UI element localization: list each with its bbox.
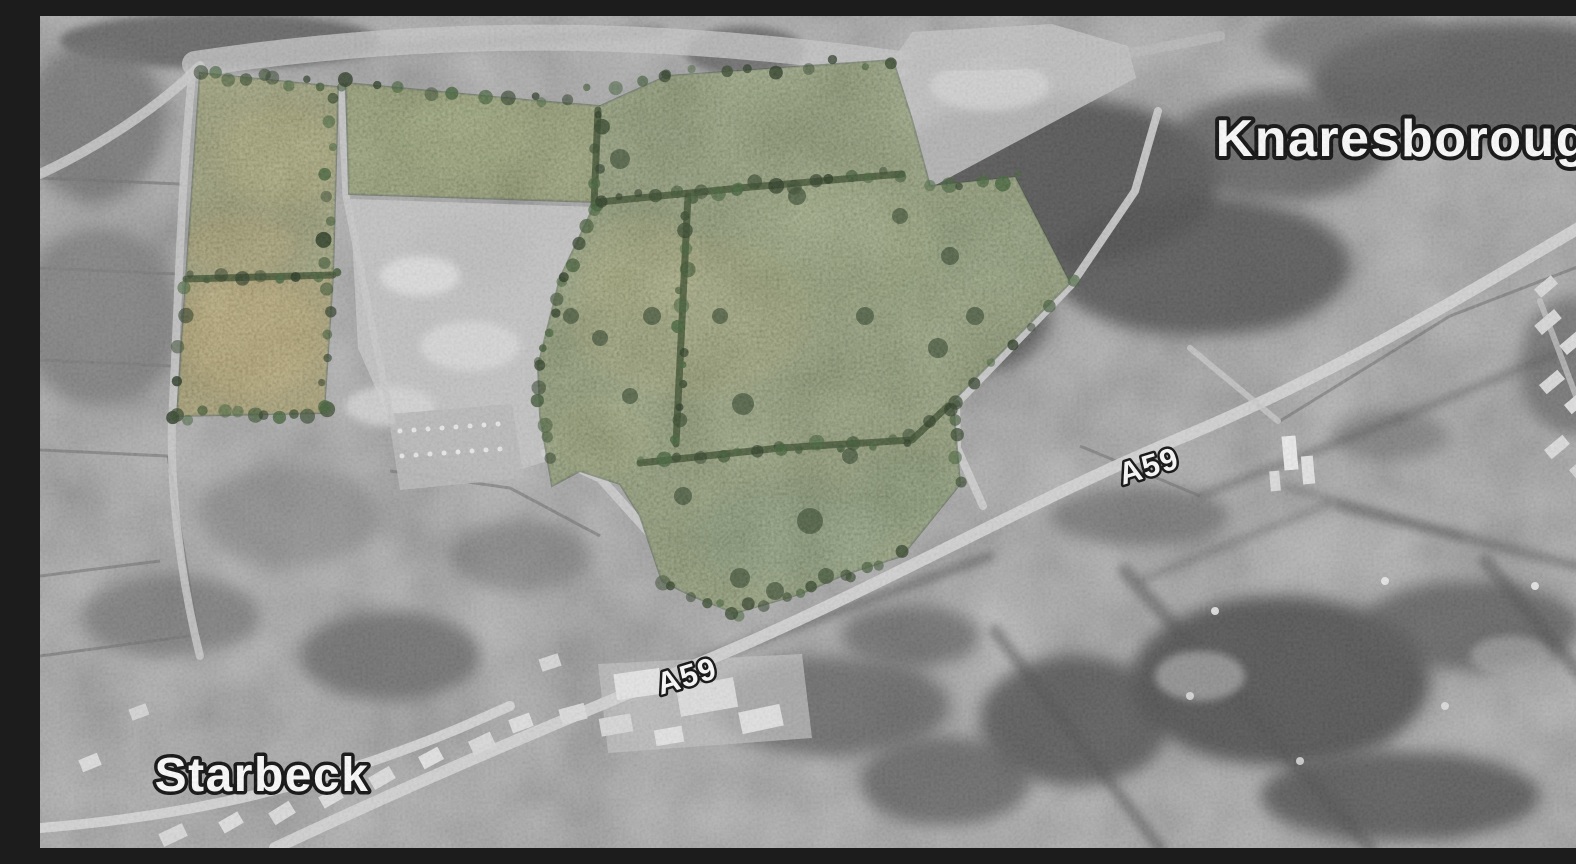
photo-grain — [40, 16, 1576, 848]
aerial-map-canvas: KnaresboroughStarbeckA59A59 — [40, 16, 1576, 848]
aerial-map: KnaresboroughStarbeckA59A59 — [40, 16, 1576, 848]
